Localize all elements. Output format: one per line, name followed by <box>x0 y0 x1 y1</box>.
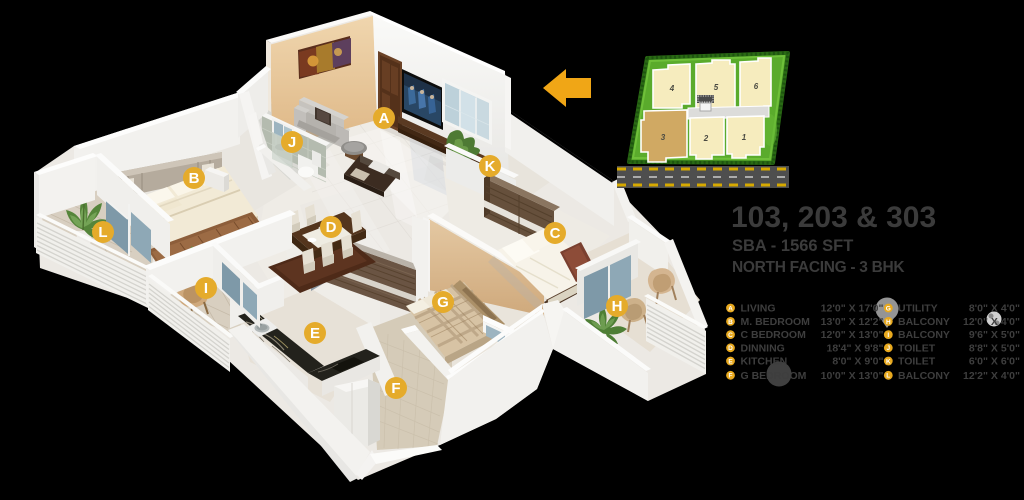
svg-text:C: C <box>728 332 733 339</box>
svg-text:BALCONY: BALCONY <box>898 370 950 382</box>
svg-text:G BEDROOM: G BEDROOM <box>741 370 807 382</box>
svg-text:M. BEDROOM: M. BEDROOM <box>741 316 811 328</box>
svg-text:18'4" X 9'8": 18'4" X 9'8" <box>827 342 884 354</box>
svg-text:L: L <box>98 224 107 241</box>
svg-text:9'6" X 5'0": 9'6" X 5'0" <box>969 329 1020 341</box>
svg-text:DINNING: DINNING <box>741 342 785 354</box>
svg-text:I: I <box>204 280 208 297</box>
svg-text:KITCHEN: KITCHEN <box>741 356 788 368</box>
svg-text:8'0" X 4'0": 8'0" X 4'0" <box>969 303 1020 315</box>
svg-text:3: 3 <box>661 133 666 142</box>
svg-text:B: B <box>189 170 200 187</box>
svg-text:F: F <box>391 380 400 397</box>
svg-text:4: 4 <box>669 84 675 93</box>
svg-text:1: 1 <box>742 133 747 142</box>
svg-text:UTILITY: UTILITY <box>898 303 938 315</box>
svg-text:A: A <box>728 305 733 312</box>
svg-text:NORTH FACING - 3 BHK: NORTH FACING - 3 BHK <box>732 259 905 276</box>
svg-text:6'0" X 6'0": 6'0" X 6'0" <box>969 356 1020 368</box>
svg-text:103, 203 & 303: 103, 203 & 303 <box>731 201 936 234</box>
svg-text:J: J <box>288 134 296 151</box>
svg-text:12'0" X 4'0": 12'0" X 4'0" <box>963 316 1020 328</box>
svg-text:10'0" X 13'0": 10'0" X 13'0" <box>821 370 884 382</box>
svg-text:A: A <box>379 110 390 127</box>
svg-text:2: 2 <box>703 134 709 143</box>
svg-text:6: 6 <box>754 82 759 91</box>
svg-text:8'0" X 9'0": 8'0" X 9'0" <box>832 356 883 368</box>
svg-text:SBA - 1566 SFT: SBA - 1566 SFT <box>732 237 853 255</box>
svg-text:H: H <box>886 319 891 326</box>
svg-text:E: E <box>728 358 733 365</box>
svg-text:K: K <box>485 158 496 175</box>
svg-text:G: G <box>437 294 449 311</box>
svg-text:12'2" X 4'0": 12'2" X 4'0" <box>963 370 1020 382</box>
svg-text:D: D <box>728 345 733 352</box>
svg-text:K: K <box>886 358 891 365</box>
svg-text:B: B <box>728 319 733 326</box>
svg-text:12'0" X 13'0": 12'0" X 13'0" <box>821 329 884 341</box>
svg-text:L: L <box>886 373 890 380</box>
svg-text:G: G <box>886 305 891 312</box>
svg-text:C BEDROOM: C BEDROOM <box>741 329 807 341</box>
svg-text:F: F <box>729 373 733 380</box>
svg-text:H: H <box>612 298 623 315</box>
svg-text:13'0" X 12'2": 13'0" X 12'2" <box>821 316 884 328</box>
svg-text:J: J <box>886 345 890 352</box>
svg-text:BALCONY: BALCONY <box>898 316 950 328</box>
svg-text:5: 5 <box>714 83 719 92</box>
svg-text:TOILET: TOILET <box>898 342 936 354</box>
svg-text:C: C <box>550 225 561 242</box>
svg-text:I: I <box>887 332 889 339</box>
svg-text:TOILET: TOILET <box>898 356 936 368</box>
svg-text:D: D <box>326 219 337 236</box>
svg-text:BALCONY: BALCONY <box>898 329 950 341</box>
svg-text:8'8" X 5'0": 8'8" X 5'0" <box>969 342 1020 354</box>
svg-text:E: E <box>310 325 320 342</box>
svg-text:LIVING: LIVING <box>741 303 776 315</box>
svg-text:12'0" X 17'0": 12'0" X 17'0" <box>821 303 884 315</box>
